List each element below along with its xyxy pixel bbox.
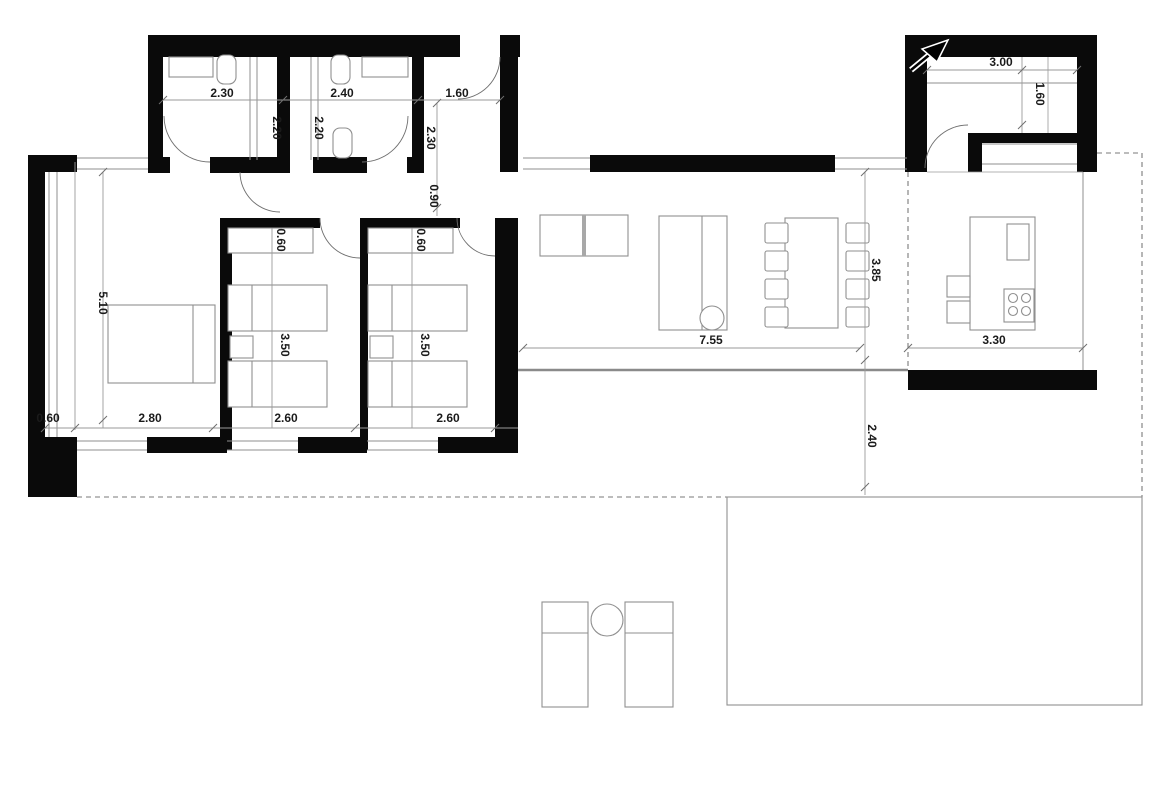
window: [367, 441, 438, 450]
floor-plan-drawing: 2.30 2.40 1.60 2.20 2.20 2.30 0.90 5.10 …: [0, 0, 1170, 785]
door-arc-master-suite: [240, 172, 280, 212]
window: [77, 158, 148, 169]
chair: [765, 279, 788, 299]
sun-lounger: [625, 602, 673, 707]
wall-segment: [28, 437, 77, 497]
wall-segment: [438, 437, 518, 453]
wall-segment: [277, 57, 290, 165]
chair: [846, 279, 869, 299]
wall-segment: [360, 218, 460, 228]
dining-table: [785, 218, 838, 328]
wall-segment: [1077, 35, 1097, 172]
chair: [765, 223, 788, 243]
door-arc-utility: [925, 125, 968, 168]
dimension-ticks: [41, 66, 1087, 491]
wall-segment: [407, 157, 424, 173]
bar-stool: [947, 276, 970, 297]
dimension-lines: [41, 57, 1087, 495]
window: [77, 441, 147, 450]
wall-segment: [500, 35, 520, 57]
wall-segment: [968, 133, 982, 172]
dim-label-bedroom3-length: 3.50: [418, 333, 432, 357]
roof-overhang-dashed: [1097, 153, 1142, 497]
shower-screen: [311, 57, 318, 160]
windows: [49, 144, 1077, 450]
door-arc-bathroom1: [164, 116, 210, 162]
wall-segment: [28, 155, 45, 437]
wall-segment: [148, 35, 460, 57]
wall-segment: [220, 218, 320, 228]
dim-label-entry-width: 1.60: [445, 86, 469, 100]
cooktop: [1004, 289, 1034, 322]
dim-label-living-depth: 3.85: [869, 258, 883, 282]
wall-segment: [905, 35, 927, 172]
chair: [765, 251, 788, 271]
dim-label-bathroom2-width: 2.40: [330, 86, 354, 100]
wall-segment: [495, 218, 518, 453]
door-arc-bedroom3: [457, 218, 495, 256]
wall-segment: [500, 57, 518, 172]
chair: [765, 307, 788, 327]
vanity-sink: [169, 57, 213, 77]
door-arc-bathroom2: [362, 116, 408, 162]
wall-segment: [147, 437, 227, 453]
wall-segment: [908, 370, 1097, 390]
dim-label-terrace-depth: 2.40: [865, 424, 879, 448]
dim-label-kitchen-width: 3.30: [982, 333, 1006, 347]
dim-label-bedroom3-width: 2.60: [436, 411, 460, 425]
dim-label-master-length: 5.10: [96, 291, 110, 315]
wardrobe: [368, 228, 453, 253]
floor-plan-sheet: 2.30 2.40 1.60 2.20 2.20 2.30 0.90 5.10 …: [0, 0, 1170, 785]
wall-segment: [412, 57, 424, 165]
wall-segment: [360, 218, 368, 450]
dim-label-bedroom2-length: 3.50: [278, 333, 292, 357]
dim-label-bedroom3-wardrobe: 0.60: [414, 228, 428, 252]
dim-label-bathroom1-width: 2.30: [210, 86, 234, 100]
vanity-sink: [362, 57, 408, 77]
door-arc-bedroom2: [320, 218, 360, 258]
wall-segment: [313, 157, 367, 173]
dim-label-utility-width: 3.00: [989, 55, 1013, 69]
dim-label-entry-depth: 2.30: [424, 126, 438, 150]
single-bed: [228, 361, 327, 407]
single-bed: [368, 285, 467, 331]
chair: [846, 251, 869, 271]
dim-label-utility-depth: 1.60: [1033, 82, 1047, 106]
wall-segment: [968, 133, 1080, 143]
toilet: [331, 55, 350, 84]
side-table: [700, 306, 724, 330]
chair: [846, 307, 869, 327]
double-bed: [108, 305, 215, 383]
single-bed: [368, 361, 467, 407]
window: [49, 172, 57, 437]
wall-segment: [298, 437, 367, 453]
pool-outline: [727, 497, 1142, 705]
dim-label-bedroom2-width: 2.60: [274, 411, 298, 425]
chair: [846, 223, 869, 243]
sun-lounger: [542, 602, 588, 707]
nightstand: [230, 336, 253, 358]
dim-label-bedroom2-wardrobe: 0.60: [274, 228, 288, 252]
dim-label-bathroom2-depth: 2.20: [312, 116, 326, 140]
dim-label-bathroom1-depth: 2.20: [270, 116, 284, 140]
toilet: [217, 55, 236, 84]
window: [523, 158, 590, 169]
single-bed: [228, 285, 327, 331]
wall-segment: [148, 157, 170, 173]
wall-segment: [148, 35, 163, 165]
wall-segment: [590, 155, 835, 172]
window: [227, 441, 298, 450]
window: [982, 144, 1077, 164]
nightstand: [370, 336, 393, 358]
round-table: [591, 604, 623, 636]
window: [835, 158, 907, 169]
dim-label-living-width: 7.55: [699, 333, 723, 347]
dim-label-hallway-width: 0.90: [427, 184, 441, 208]
dim-label-master-width: 2.80: [138, 411, 162, 425]
kitchen-sink: [1007, 224, 1029, 260]
wardrobe: [228, 228, 313, 253]
bar-stool: [947, 301, 970, 323]
shower-screen: [250, 57, 257, 160]
bidet: [333, 128, 352, 158]
dim-label-master-side: 0.60: [36, 411, 60, 425]
